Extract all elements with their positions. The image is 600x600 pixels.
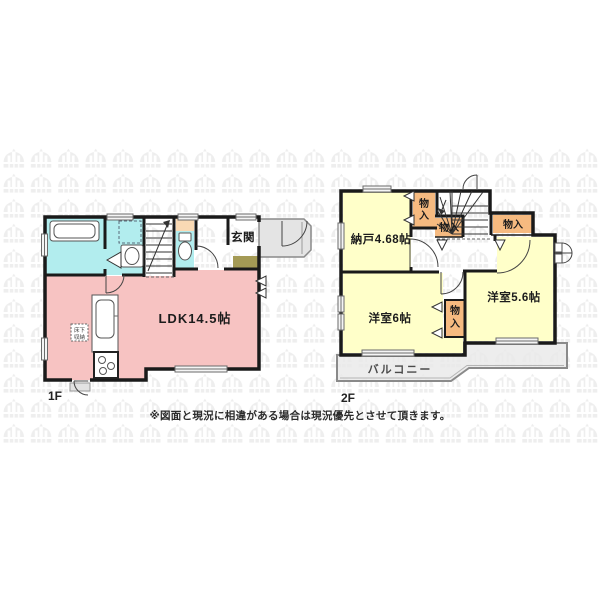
closet-1-label-char2: 入 [419, 210, 429, 222]
bay-window-icon [555, 243, 572, 263]
bathtub-icon [50, 221, 99, 241]
closet-2-label: 物入 [439, 221, 459, 234]
floor-1-plan: 床下 収納 LDK14.5帖 玄関 1F [42, 214, 312, 403]
porch [259, 219, 311, 257]
underfloor-storage-label-2: 収納 [74, 333, 86, 341]
wall-rooms-top [341, 271, 497, 272]
back-door [70, 381, 90, 395]
entrance-mat [233, 256, 258, 268]
closet-4-label-char2: 入 [450, 318, 460, 330]
closet-4-label-char1: 物 [450, 304, 460, 317]
stairs-1f [146, 220, 174, 277]
bedroom-56-floor [465, 237, 553, 341]
underfloor-storage-icon: 床下 収納 [71, 324, 88, 341]
storage-room-floor [343, 191, 411, 271]
bedroom-56-label: 洋室5.6帖 [487, 290, 541, 304]
bedroom6-door-arc [441, 272, 463, 294]
vanity-sink-icon [121, 245, 143, 267]
closet-1-label-char1: 物 [419, 197, 429, 210]
ldk-label: LDK14.5帖 [158, 311, 231, 326]
toilet-icon [179, 233, 192, 260]
floorplan-canvas: 床下 収納 LDK14.5帖 玄関 1F [0, 0, 600, 600]
floor-2-label: 2F [341, 391, 355, 405]
floor-1-label: 1F [48, 389, 62, 403]
balcony-label: バルコニー [368, 363, 433, 376]
stair-top-door-arc [463, 175, 477, 189]
closet-3-label: 物入 [503, 218, 523, 231]
floorplan-page: { "disclaimer": "※図面と現況に相違がある場合は現況優先とさせて… [0, 0, 600, 600]
bedroom-6-label: 洋室6帖 [369, 311, 412, 325]
toilet-door-arc [196, 246, 218, 268]
underfloor-storage-label-1: 床下 [74, 326, 86, 334]
stove-icon [94, 352, 118, 378]
floor-2-plan: 納戸4.68帖 洋室6帖 洋室5.6帖 物 入 物入 物入 物 入 バルコニー … [337, 175, 572, 405]
storage-room-door-arc [410, 239, 438, 267]
entrance-label: 玄関 [231, 230, 255, 244]
kitchen-counter-icon [92, 295, 118, 352]
disclaimer-text: ※図面と現況に相違がある場合は現況優先とさせて頂きます。 [0, 408, 600, 423]
storage-room-label: 納戸4.68帖 [351, 232, 411, 246]
